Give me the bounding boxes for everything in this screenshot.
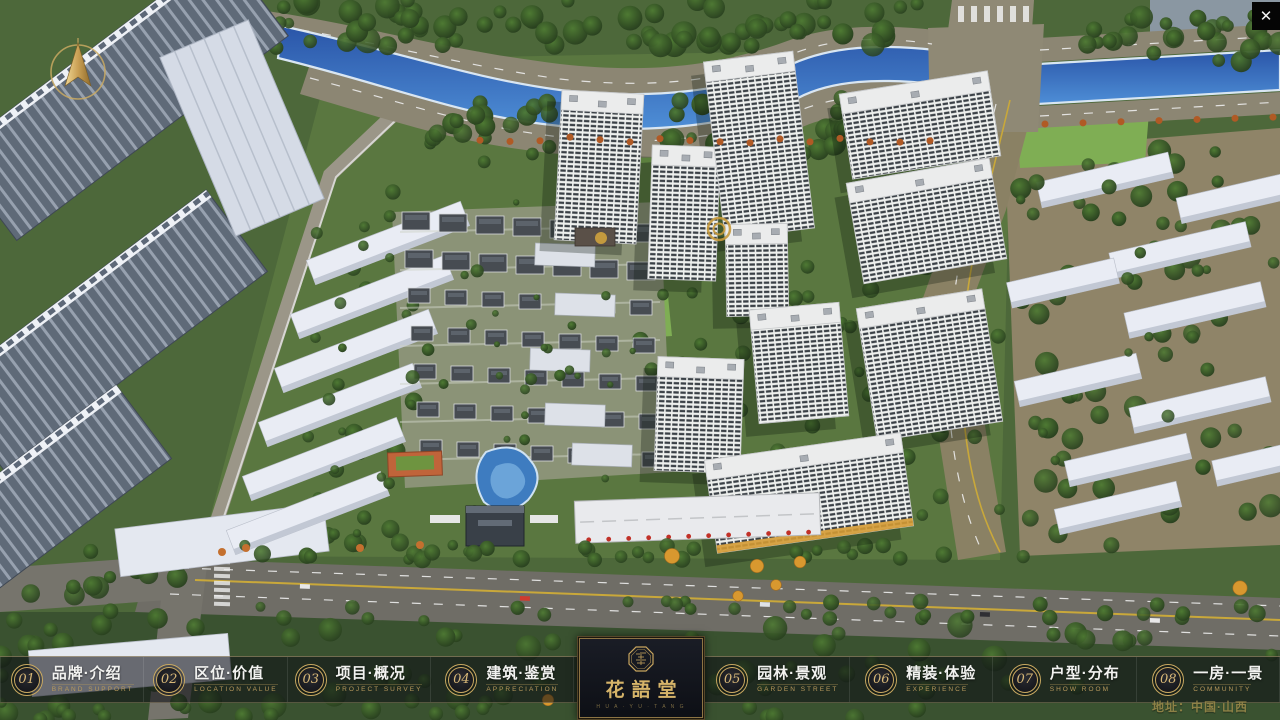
project-logo-panel[interactable]: 花語堂 H U A · Y U · T A N G (577, 636, 705, 720)
nav-item-number-badge: 08 (1152, 664, 1184, 696)
nav-item-number: 04 (453, 672, 470, 687)
nav-group-left: 01 品牌·介绍 BRAND SUPPORT 02 区位·价值 LOCATION… (0, 657, 574, 702)
nav-item-number-badge: 02 (153, 664, 185, 696)
nav-group-right: 05 园林·景观 GARDEN STREET 06 精装·体验 EXPERIEN… (706, 657, 1280, 702)
nav-item-label-zh: 项目·概况 (336, 665, 406, 682)
nav-item-number-badge: 01 (11, 664, 43, 696)
nav-item-label-zh: 建筑·鉴赏 (486, 665, 556, 682)
sales-presentation-window: ✕ 01 品牌·介绍 BRAND SUPPORT 02 区位·价值 LOCATI… (0, 0, 1280, 720)
nav-item-label-zh: 品牌·介绍 (52, 665, 122, 682)
project-logo-subtitle: H U A · Y U · T A N G (596, 704, 685, 710)
nav-item-brand-support[interactable]: 01 品牌·介绍 BRAND SUPPORT (0, 657, 144, 702)
close-button[interactable]: ✕ (1252, 2, 1280, 30)
nav-item-label-en: BRAND SUPPORT (52, 684, 134, 693)
nav-item-label-en: GARDEN STREET (757, 684, 838, 693)
nav-item-label-en: EXPERIENCE (906, 684, 968, 693)
nav-item-number-badge: 06 (865, 664, 897, 696)
nav-item-number: 02 (161, 672, 178, 687)
project-logo-name: 花語堂 (598, 675, 683, 702)
nav-item-garden-street[interactable]: 05 园林·景观 GARDEN STREET (706, 657, 850, 702)
nav-item-label-en: LOCATION VALUE (194, 684, 277, 693)
nav-item-label-zh: 园林·景观 (757, 665, 827, 682)
nav-item-label-en: PROJECT SURVEY (336, 684, 423, 693)
nav-item-number: 08 (1160, 672, 1177, 687)
nav-item-community[interactable]: 08 一房·一景 COMMUNITY (1137, 657, 1280, 702)
nav-item-label-en: COMMUNITY (1193, 684, 1251, 693)
nav-item-number: 03 (303, 672, 320, 687)
nav-item-number: 07 (1016, 672, 1033, 687)
nav-item-number-badge: 04 (445, 664, 477, 696)
nav-item-label-zh: 户型·分布 (1050, 665, 1120, 682)
nav-item-label-zh: 区位·价值 (194, 665, 264, 682)
nav-item-number: 06 (873, 672, 890, 687)
nav-item-label-zh: 一房·一景 (1193, 665, 1263, 682)
nav-item-show-room[interactable]: 07 户型·分布 SHOW ROOM (993, 657, 1137, 702)
nav-item-project-survey[interactable]: 03 项目·概况 PROJECT SURVEY (288, 657, 431, 702)
project-address: 地址：中国·山西 (1152, 698, 1248, 715)
nav-item-appreciation[interactable]: 04 建筑·鉴赏 APPRECIATION (431, 657, 574, 702)
nav-item-label-en: SHOW ROOM (1050, 684, 1110, 693)
nav-item-number: 05 (724, 672, 741, 687)
nav-item-number: 01 (18, 672, 35, 687)
nav-item-label-zh: 精装·体验 (906, 665, 976, 682)
nav-item-number-badge: 05 (716, 664, 748, 696)
masterplan-render-viewport[interactable] (0, 0, 1280, 720)
seal-emblem-icon (628, 646, 654, 672)
nav-item-number-badge: 03 (295, 664, 327, 696)
nav-item-location-value[interactable]: 02 区位·价值 LOCATION VALUE (144, 657, 287, 702)
nav-item-number-badge: 07 (1009, 664, 1041, 696)
nav-item-experience[interactable]: 06 精装·体验 EXPERIENCE (850, 657, 994, 702)
nav-item-label-en: APPRECIATION (486, 684, 558, 693)
